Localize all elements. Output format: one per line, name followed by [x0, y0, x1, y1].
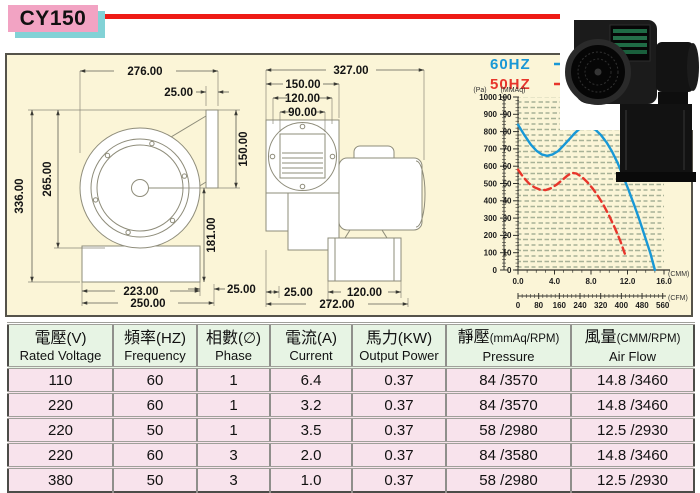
pa-tick-label: 600	[484, 162, 498, 171]
side-base	[328, 238, 401, 281]
mmaq-tick-label: 40	[503, 197, 512, 206]
pa-tick-label: 100	[484, 249, 498, 258]
dim-label: 272.00	[319, 299, 354, 311]
product-photo	[560, 0, 700, 190]
table-cell: 220	[8, 443, 113, 468]
column-header: 頻率(HZ)Frequency	[113, 324, 197, 368]
dim-label: 265.00	[42, 161, 54, 196]
table-cell: 220	[8, 393, 113, 418]
table-cell: 84 /3570	[446, 393, 571, 418]
table-cell: 60	[113, 443, 197, 468]
dim-label: 276.00	[127, 66, 162, 78]
pa-tick-label: 300	[484, 214, 498, 223]
column-header: 馬力(KW)Output Power	[352, 324, 446, 368]
legend-60hz-label: 60HZ	[490, 56, 531, 73]
front-view-drawing: 276.00 25.00 150.00 336.00 265.00 181.00…	[10, 58, 260, 311]
table-cell: 1	[197, 393, 270, 418]
pa-tick-label: 800	[484, 127, 498, 136]
datasheet-page: { "title": "CY150", "drawings": { "front…	[0, 0, 700, 480]
dim-label: 250.00	[130, 298, 165, 310]
cfm-tick-label: 480	[635, 301, 649, 310]
cmm-tick-label: 8.0	[585, 277, 597, 286]
table-cell: 6.4	[270, 368, 352, 393]
pa-tick-label: 200	[484, 231, 498, 240]
table-cell: 1	[197, 418, 270, 443]
pa-tick-label: 700	[484, 145, 498, 154]
dim-label: 336.00	[14, 178, 26, 213]
model-badge: CY150	[8, 5, 98, 32]
dim-label: 90.00	[288, 107, 317, 119]
side-inlet-flange	[266, 120, 339, 193]
table-cell: 50	[113, 418, 197, 443]
mmaq-tick-label: 20	[503, 231, 512, 240]
dim-label: 327.00	[333, 65, 368, 77]
pa-tick-label: 0	[493, 266, 498, 275]
cmm-tick-label: 0.0	[512, 277, 524, 286]
pa-tick-label: 900	[484, 110, 498, 119]
mmaq-tick-label: 60	[503, 162, 512, 171]
model-name: CY150	[20, 7, 87, 31]
column-header: 電壓(V)Rated Voltage	[8, 324, 113, 368]
column-header: 風量(CMM/RPM)Air Flow	[571, 324, 694, 368]
cfm-axis-label: (CFM)	[668, 295, 688, 302]
cfm-tick-label: 400	[615, 301, 629, 310]
table-row: 2205013.50.3758 /298012.5 /2930	[8, 418, 694, 443]
mmaq-tick-label: 10	[503, 249, 512, 258]
table-cell: 220	[8, 418, 113, 443]
cmm-tick-label: 4.0	[549, 277, 561, 286]
cfm-axis: 080160240320400480560	[516, 293, 670, 310]
table-cell: 14.8 /3460	[571, 368, 694, 393]
cmm-tick-label: 12.0	[620, 277, 636, 286]
cfm-tick-label: 0	[516, 301, 521, 310]
blower-base	[620, 104, 692, 179]
column-header: 靜壓(mmAq/RPM)Pressure	[446, 324, 571, 368]
spec-table: 電壓(V)Rated Voltage頻率(HZ)Frequency相數(∅)Ph…	[7, 322, 695, 493]
mmaq-tick-label: 80	[503, 127, 512, 136]
dim-label: 120.00	[347, 287, 382, 299]
column-header: 電流(A)Current	[270, 324, 352, 368]
table-cell: 14.8 /3460	[571, 443, 694, 468]
table-cell: 0.37	[352, 393, 446, 418]
mmaq-tick-label: 100	[498, 93, 512, 102]
mmaq-tick-label: 30	[503, 214, 512, 223]
front-outlet-flange	[206, 110, 218, 188]
table-cell: 12.5 /2930	[571, 418, 694, 443]
dim-label: 25.00	[284, 287, 313, 299]
dim-label: 150.00	[285, 79, 320, 91]
spec-table-header: 電壓(V)Rated Voltage頻率(HZ)Frequency相數(∅)Ph…	[8, 324, 694, 368]
cmm-tick-label: 16.0	[656, 277, 672, 286]
table-cell: 84 /3580	[446, 443, 571, 468]
table-row: 2206013.20.3784 /357014.8 /3460	[8, 393, 694, 418]
mmaq-tick-label: 90	[503, 110, 512, 119]
pa-tick-label: 1000	[479, 93, 497, 102]
table-cell: 1	[197, 368, 270, 393]
table-cell: 0.37	[352, 368, 446, 393]
cmm-axis: 0.04.08.012.016.0	[512, 270, 672, 286]
table-cell: 110	[8, 368, 113, 393]
dim-label: 150.00	[238, 131, 250, 166]
front-base	[82, 246, 200, 282]
table-cell: 0.37	[352, 443, 446, 468]
cfm-tick-label: 560	[656, 301, 670, 310]
table-cell: 58 /2980	[446, 418, 571, 443]
table-cell: 3.5	[270, 418, 352, 443]
pa-tick-label: 500	[484, 179, 498, 188]
mmaq-tick-label: 70	[503, 145, 512, 154]
table-cell: 60	[113, 368, 197, 393]
dim-label: 223.00	[123, 286, 158, 298]
table-cell: 3	[197, 443, 270, 468]
column-header: 相數(∅)Phase	[197, 324, 270, 368]
dim-label: 25.00	[164, 87, 193, 99]
mmaq-tick-label: 50	[503, 179, 512, 188]
side-view-drawing: 327.00 150.00 120.00 90.00 25.00 120.00 …	[256, 58, 468, 311]
table-cell: 60	[113, 393, 197, 418]
cfm-tick-label: 320	[594, 301, 608, 310]
pa-tick-label: 400	[484, 197, 498, 206]
table-cell: 3.2	[270, 393, 352, 418]
cfm-tick-label: 240	[573, 301, 587, 310]
side-motor	[339, 158, 422, 230]
cfm-tick-label: 80	[534, 301, 543, 310]
table-row: 2206032.00.3784 /358014.8 /3460	[8, 443, 694, 468]
dim-label: 25.00	[227, 284, 256, 296]
dim-label: 181.00	[206, 217, 218, 252]
cfm-tick-label: 160	[553, 301, 567, 310]
mmaq-tick-label: 0	[507, 266, 512, 275]
table-cell: 0.37	[352, 418, 446, 443]
table-row: 1106016.40.3784 /357014.8 /3460	[8, 368, 694, 393]
dim-label: 120.00	[285, 93, 320, 105]
table-cell: 2.0	[270, 443, 352, 468]
table-cell: 84 /3570	[446, 368, 571, 393]
table-cell: 14.8 /3460	[571, 393, 694, 418]
